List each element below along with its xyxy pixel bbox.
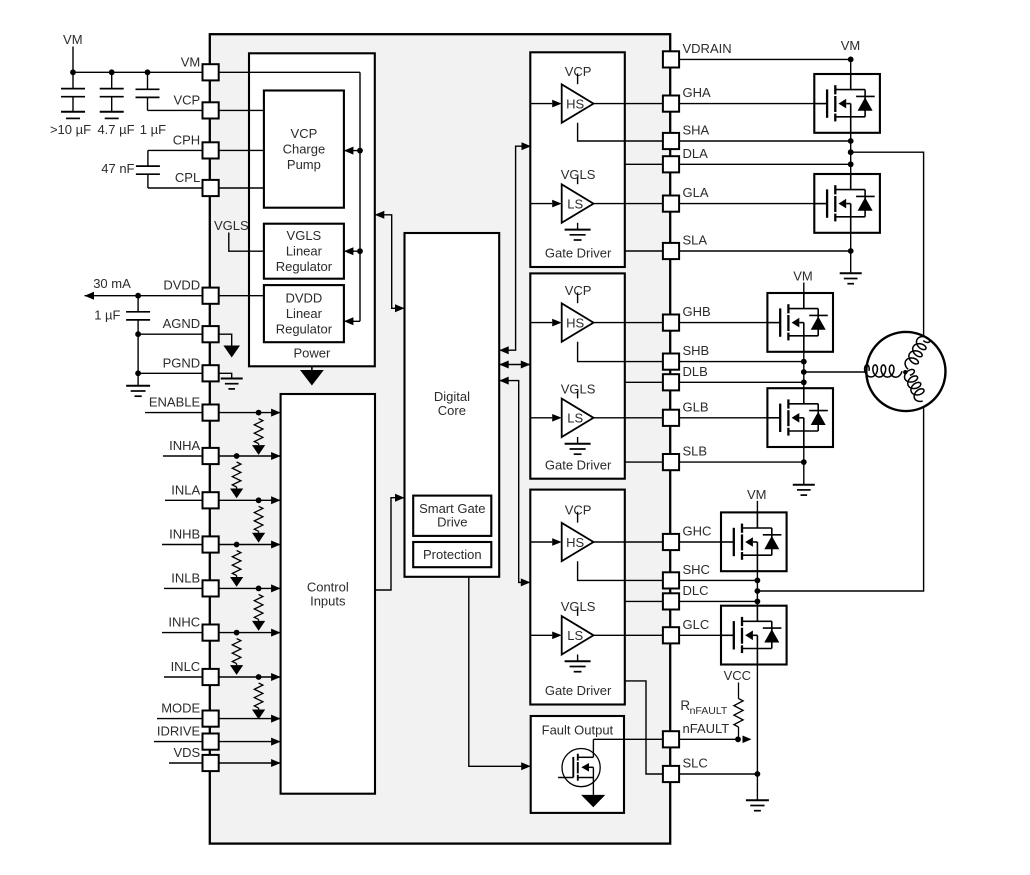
svg-text:VDS: VDS xyxy=(173,745,200,760)
svg-text:SLB: SLB xyxy=(683,444,708,459)
svg-text:VM: VM xyxy=(63,32,83,47)
svg-text:VGLS: VGLS xyxy=(287,228,322,243)
svg-text:nFAULT: nFAULT xyxy=(683,721,730,736)
svg-text:Core: Core xyxy=(438,403,466,418)
svg-text:HS: HS xyxy=(566,96,584,111)
svg-text:LS: LS xyxy=(567,628,583,643)
svg-text:CPH: CPH xyxy=(173,132,200,147)
svg-text:1 µF: 1 µF xyxy=(140,122,166,137)
svg-text:GLB: GLB xyxy=(683,399,709,414)
svg-text:GHB: GHB xyxy=(683,304,711,319)
svg-text:Gate Driver: Gate Driver xyxy=(545,246,612,261)
svg-text:>10 µF: >10 µF xyxy=(50,122,91,137)
svg-text:VCP: VCP xyxy=(173,92,200,107)
svg-text:GHA: GHA xyxy=(683,85,712,100)
svg-text:VGLS: VGLS xyxy=(214,218,249,233)
svg-text:AGND: AGND xyxy=(163,316,201,331)
svg-text:VCP: VCP xyxy=(291,126,318,141)
svg-text:VCC: VCC xyxy=(724,668,751,683)
svg-text:nFAULT: nFAULT xyxy=(690,705,728,717)
svg-text:Smart Gate: Smart Gate xyxy=(419,501,485,516)
svg-text:Power: Power xyxy=(293,345,331,360)
svg-text:LS: LS xyxy=(567,196,583,211)
svg-text:Linear: Linear xyxy=(286,306,323,321)
svg-text:INLB: INLB xyxy=(171,570,200,585)
svg-text:Drive: Drive xyxy=(437,515,467,530)
svg-text:GLC: GLC xyxy=(683,617,710,632)
svg-text:1 µF: 1 µF xyxy=(94,308,120,323)
svg-text:INHA: INHA xyxy=(169,438,200,453)
svg-text:ENABLE: ENABLE xyxy=(149,395,201,410)
svg-text:VM: VM xyxy=(181,54,201,69)
svg-text:VM: VM xyxy=(793,268,813,283)
svg-text:HS: HS xyxy=(566,315,584,330)
svg-text:PGND: PGND xyxy=(163,355,201,370)
svg-text:Regulator: Regulator xyxy=(276,322,333,337)
svg-text:VDRAIN: VDRAIN xyxy=(683,41,732,56)
svg-text:MODE: MODE xyxy=(161,701,200,716)
svg-text:Digital: Digital xyxy=(434,389,470,404)
svg-text:DVDD: DVDD xyxy=(163,278,200,293)
svg-text:HS: HS xyxy=(566,535,584,550)
svg-text:SLC: SLC xyxy=(683,756,708,771)
svg-text:INLC: INLC xyxy=(171,659,201,674)
svg-text:Regulator: Regulator xyxy=(276,259,333,274)
svg-text:30 mA: 30 mA xyxy=(93,276,131,291)
svg-text:SLA: SLA xyxy=(683,233,708,248)
svg-text:INHC: INHC xyxy=(168,615,200,630)
svg-text:4.7 µF: 4.7 µF xyxy=(97,122,134,137)
svg-text:Gate Driver: Gate Driver xyxy=(545,457,612,472)
svg-text:GLA: GLA xyxy=(683,185,709,200)
svg-text:IDRIVE: IDRIVE xyxy=(157,724,201,739)
svg-text:Control: Control xyxy=(307,579,349,594)
svg-text:SHA: SHA xyxy=(683,123,710,138)
svg-text:DLC: DLC xyxy=(683,583,709,598)
svg-text:CPL: CPL xyxy=(175,170,200,185)
svg-text:Fault Output: Fault Output xyxy=(542,722,614,737)
svg-text:47 nF: 47 nF xyxy=(101,161,134,176)
svg-text:Protection: Protection xyxy=(423,547,482,562)
svg-text:INLA: INLA xyxy=(171,482,200,497)
svg-text:Charge: Charge xyxy=(283,142,326,157)
svg-text:Linear: Linear xyxy=(286,244,323,259)
svg-text:INHB: INHB xyxy=(169,527,200,542)
svg-text:LS: LS xyxy=(567,411,583,426)
svg-text:VM: VM xyxy=(747,487,767,502)
svg-text:SHC: SHC xyxy=(683,562,710,577)
svg-text:SHB: SHB xyxy=(683,343,710,358)
svg-text:Gate Driver: Gate Driver xyxy=(545,683,612,698)
svg-text:Inputs: Inputs xyxy=(310,593,346,608)
svg-text:DVDD: DVDD xyxy=(285,291,322,306)
svg-text:GHC: GHC xyxy=(683,524,712,539)
svg-text:Pump: Pump xyxy=(287,157,321,172)
svg-text:VM: VM xyxy=(841,38,861,53)
svg-text:DLA: DLA xyxy=(683,146,709,161)
svg-text:DLB: DLB xyxy=(683,364,708,379)
